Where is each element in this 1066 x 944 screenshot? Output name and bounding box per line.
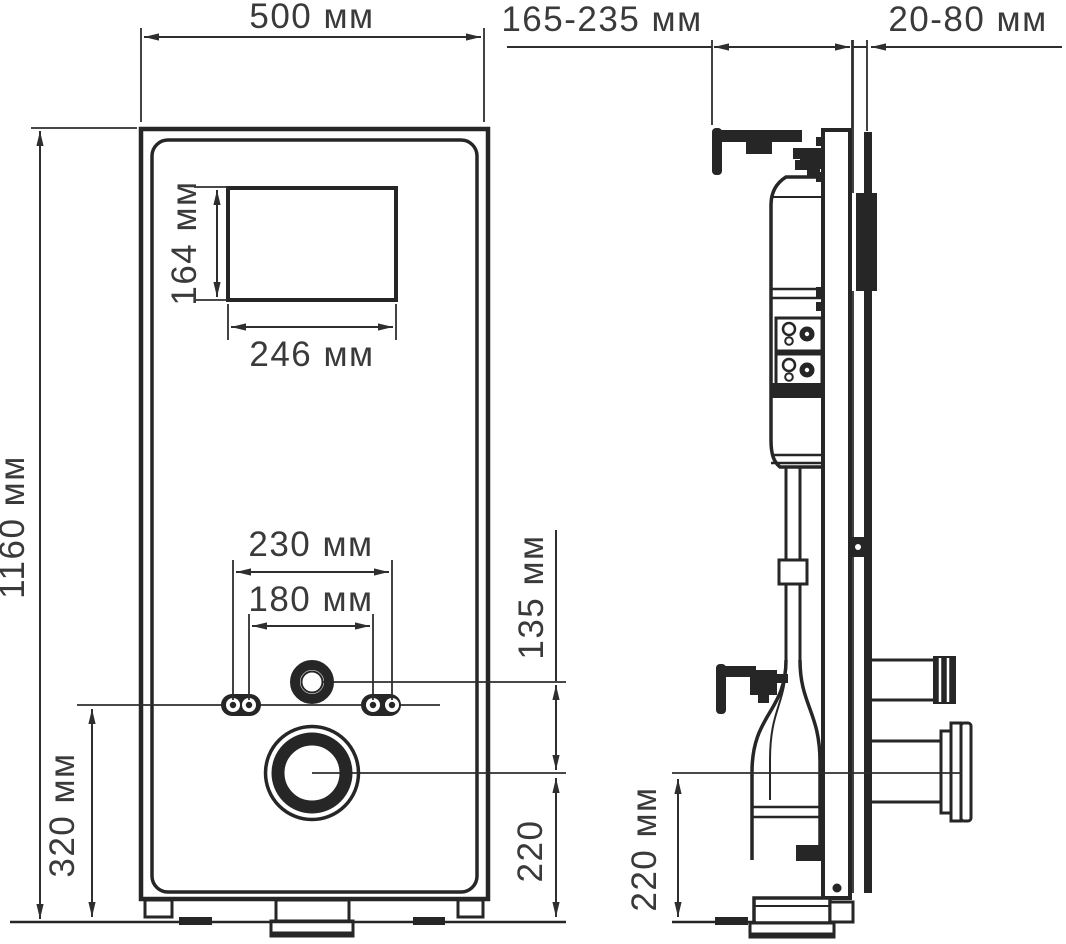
technical-drawing-page: 500 мм 1160 мм 164 мм 246 мм 230 мм 180 … [0, 0, 1066, 944]
cistern-tank [771, 160, 823, 467]
opening-width-label: 246 мм [249, 335, 374, 374]
inlet-offset-label: 135 мм [512, 534, 551, 659]
dim-outlet-height-side: 220 мм [625, 779, 678, 917]
frame-rail [823, 130, 850, 898]
dim-outlet-height-front: 220 [511, 778, 556, 917]
front-base [145, 900, 483, 936]
dim-opening-width: 246 мм [228, 304, 396, 374]
mounting-block [856, 193, 877, 291]
outlet-height-side-label: 220 мм [625, 786, 664, 911]
drain-pipe [872, 723, 971, 821]
mounting-stud-left [221, 694, 261, 716]
opening-height-label: 164 мм [165, 180, 204, 305]
stud-height-label: 320 мм [43, 752, 82, 877]
stud-outer-label: 230 мм [248, 525, 373, 564]
inlet-valve-bracket [716, 664, 788, 714]
dim-stud-height: 320 мм [43, 709, 92, 917]
side-view [672, 40, 971, 937]
flush-bracket-plates [776, 318, 822, 387]
dim-inlet-offset: 135 мм [512, 530, 556, 770]
stud-inner-label: 180 мм [248, 580, 373, 619]
access-opening [228, 188, 396, 300]
flange-plate-3 [961, 723, 971, 821]
plate-connector [852, 537, 864, 557]
front-width-label: 500 мм [249, 0, 374, 36]
dim-front-width: 500 мм [141, 0, 484, 122]
side-base [715, 898, 853, 937]
wall-offset-label: 20-80 мм [888, 0, 1047, 39]
side-depth-label: 165-235 мм [501, 0, 702, 39]
water-supply-pipe [872, 656, 956, 704]
mounting-stud-right [361, 694, 401, 716]
outlet-height-front-label: 220 [511, 820, 550, 883]
front-height-label: 1160 мм [0, 455, 32, 599]
dim-opening-height: 164 мм [165, 180, 228, 305]
drawing-canvas: 500 мм 1160 мм 164 мм 246 мм 230 мм 180 … [0, 0, 1066, 944]
ribbed-cap [933, 656, 956, 704]
dim-side-depth: 165-235 мм 20-80 мм [501, 0, 1062, 131]
